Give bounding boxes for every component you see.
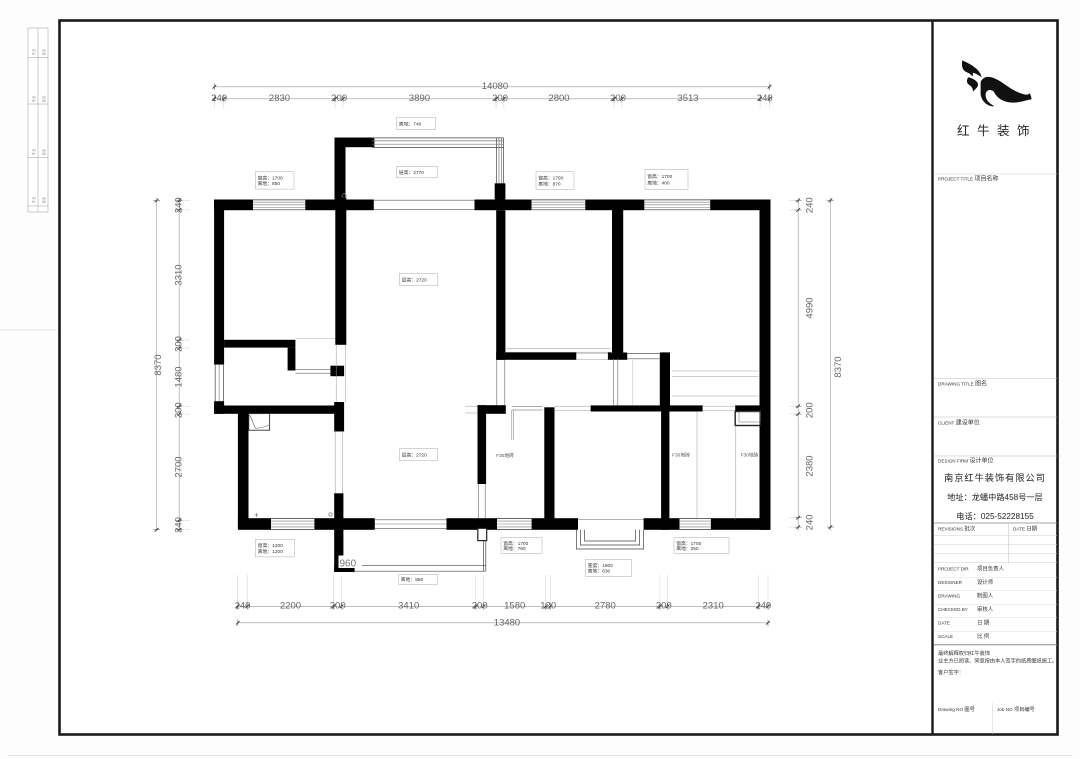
svg-text:专业: 专业 <box>31 49 36 55</box>
svg-text:离地：740: 离地：740 <box>399 120 422 127</box>
svg-text:240: 240 <box>235 601 251 612</box>
svg-text:200: 200 <box>805 402 816 418</box>
svg-text:F30地砖: F30地砖 <box>496 452 514 459</box>
svg-text:2830: 2830 <box>269 93 290 104</box>
svg-text:120: 120 <box>540 601 556 612</box>
svg-text:DRAWING TITLE 图名: DRAWING TITLE 图名 <box>938 380 987 388</box>
svg-text:DRAWING: DRAWING <box>938 594 960 599</box>
svg-text:3513: 3513 <box>677 93 698 104</box>
svg-text:姓名: 姓名 <box>41 149 46 155</box>
svg-text:DATE 日期: DATE 日期 <box>1013 526 1037 533</box>
svg-text:240: 240 <box>211 93 227 104</box>
svg-text:红牛装饰: 红牛装饰 <box>957 123 1037 138</box>
svg-text:业主方已阅读、同意按由本人签字的纸质图纸施工。: 业主方已阅读、同意按由本人签字的纸质图纸施工。 <box>938 657 1057 665</box>
svg-text:200: 200 <box>472 601 488 612</box>
svg-text:离地：850: 离地：850 <box>258 180 281 187</box>
svg-text:比 例: 比 例 <box>977 632 989 640</box>
svg-text:240: 240 <box>805 197 816 213</box>
svg-text:CLIENT 建设单位: CLIENT 建设单位 <box>938 419 980 427</box>
svg-text:项目负责人: 项目负责人 <box>977 565 1005 573</box>
svg-text:200: 200 <box>173 402 184 418</box>
svg-text:1480: 1480 <box>173 366 184 387</box>
svg-text:Drawing NO 图号: Drawing NO 图号 <box>938 706 975 713</box>
svg-text:离地：400: 离地：400 <box>647 180 670 187</box>
svg-text:2310: 2310 <box>703 601 724 612</box>
svg-text:离地：760: 离地：760 <box>503 545 526 552</box>
svg-text:DESIGN FIRM 设计单位: DESIGN FIRM 设计单位 <box>938 457 994 465</box>
svg-text:200: 200 <box>330 601 346 612</box>
svg-text:F30地砖: F30地砖 <box>741 451 759 458</box>
svg-text:2200: 2200 <box>280 601 301 612</box>
svg-text:最终解释权归红牛装饰: 最终解释权归红牛装饰 <box>938 649 990 657</box>
svg-text:200: 200 <box>492 93 508 104</box>
svg-text:设计师: 设计师 <box>977 578 994 586</box>
svg-text:层高：2720: 层高：2720 <box>402 451 427 458</box>
svg-text:离地：850: 离地：850 <box>401 576 424 583</box>
svg-text:3410: 3410 <box>398 601 419 612</box>
svg-text:Job NO 项目编号: Job NO 项目编号 <box>997 705 1035 713</box>
svg-text:电话：025-52228155: 电话：025-52228155 <box>956 511 1034 521</box>
svg-text:REVISIONS 批次: REVISIONS 批次 <box>938 525 976 533</box>
svg-text:200: 200 <box>610 93 626 104</box>
svg-text:2700: 2700 <box>173 456 184 477</box>
svg-text:离地：250: 离地：250 <box>676 545 699 552</box>
svg-text:2380: 2380 <box>805 455 816 476</box>
svg-text:240: 240 <box>755 601 771 612</box>
svg-text:240: 240 <box>757 93 773 104</box>
svg-text:专业: 专业 <box>31 197 36 203</box>
svg-text:CHECKED BY: CHECKED BY <box>938 607 968 612</box>
svg-text:240: 240 <box>805 514 816 530</box>
svg-text:姓名: 姓名 <box>41 49 46 55</box>
svg-text:SCALE: SCALE <box>938 634 953 639</box>
svg-text:地址：龙蟠中路458号一层: 地址：龙蟠中路458号一层 <box>947 492 1043 502</box>
svg-text:3310: 3310 <box>173 264 184 285</box>
svg-text:200: 200 <box>656 601 672 612</box>
svg-text:层高：2720: 层高：2720 <box>402 276 427 283</box>
svg-text:窗高：1700: 窗高：1700 <box>538 175 563 182</box>
svg-text:南京红牛装饰有限公司: 南京红牛装饰有限公司 <box>944 472 1046 483</box>
svg-text:客户签字：: 客户签字： <box>938 668 964 676</box>
svg-text:1580: 1580 <box>504 601 525 612</box>
svg-text:960: 960 <box>340 559 357 570</box>
svg-text:日 期: 日 期 <box>977 620 989 627</box>
svg-text:200: 200 <box>173 336 184 352</box>
svg-text:离地：1200: 离地：1200 <box>258 548 283 555</box>
svg-text:PROJECT TITLE 项目名称: PROJECT TITLE 项目名称 <box>938 175 998 183</box>
svg-text:窗高：1700: 窗高：1700 <box>258 174 283 181</box>
svg-text:200: 200 <box>331 93 347 104</box>
svg-text:专业: 专业 <box>31 149 36 155</box>
svg-text:DATE: DATE <box>938 621 950 626</box>
svg-text:离地：870: 离地：870 <box>538 180 561 187</box>
svg-text:3890: 3890 <box>409 93 430 104</box>
svg-text:8370: 8370 <box>833 356 844 377</box>
svg-text:审核人: 审核人 <box>977 605 994 613</box>
svg-text:离地：630: 离地：630 <box>588 568 611 575</box>
svg-text:窗高：1700: 窗高：1700 <box>503 540 528 547</box>
svg-text:窗高：1700: 窗高：1700 <box>676 540 701 547</box>
svg-text:窗高：1700: 窗高：1700 <box>647 173 672 180</box>
svg-text:专业: 专业 <box>31 96 36 102</box>
svg-text:8370: 8370 <box>153 354 164 375</box>
svg-text:DESIGNER: DESIGNER <box>938 580 963 585</box>
svg-text:姓名: 姓名 <box>41 96 46 102</box>
svg-text:窗高：1200: 窗高：1200 <box>258 542 283 549</box>
svg-text:2780: 2780 <box>595 601 616 612</box>
svg-text:层高：2770: 层高：2770 <box>399 169 424 176</box>
svg-text:宽度：1800: 宽度：1800 <box>588 562 613 569</box>
svg-text:14080: 14080 <box>482 81 508 92</box>
svg-text:姓名: 姓名 <box>41 197 46 203</box>
svg-text:240: 240 <box>173 517 184 533</box>
svg-text:F30地砖: F30地砖 <box>672 451 690 458</box>
svg-text:240: 240 <box>173 197 184 213</box>
svg-text:PROJECT DIR: PROJECT DIR <box>938 567 969 572</box>
svg-text:2800: 2800 <box>548 93 569 104</box>
svg-text:制图人: 制图人 <box>977 592 994 600</box>
svg-text:4990: 4990 <box>805 297 816 318</box>
svg-text:13480: 13480 <box>494 617 520 628</box>
